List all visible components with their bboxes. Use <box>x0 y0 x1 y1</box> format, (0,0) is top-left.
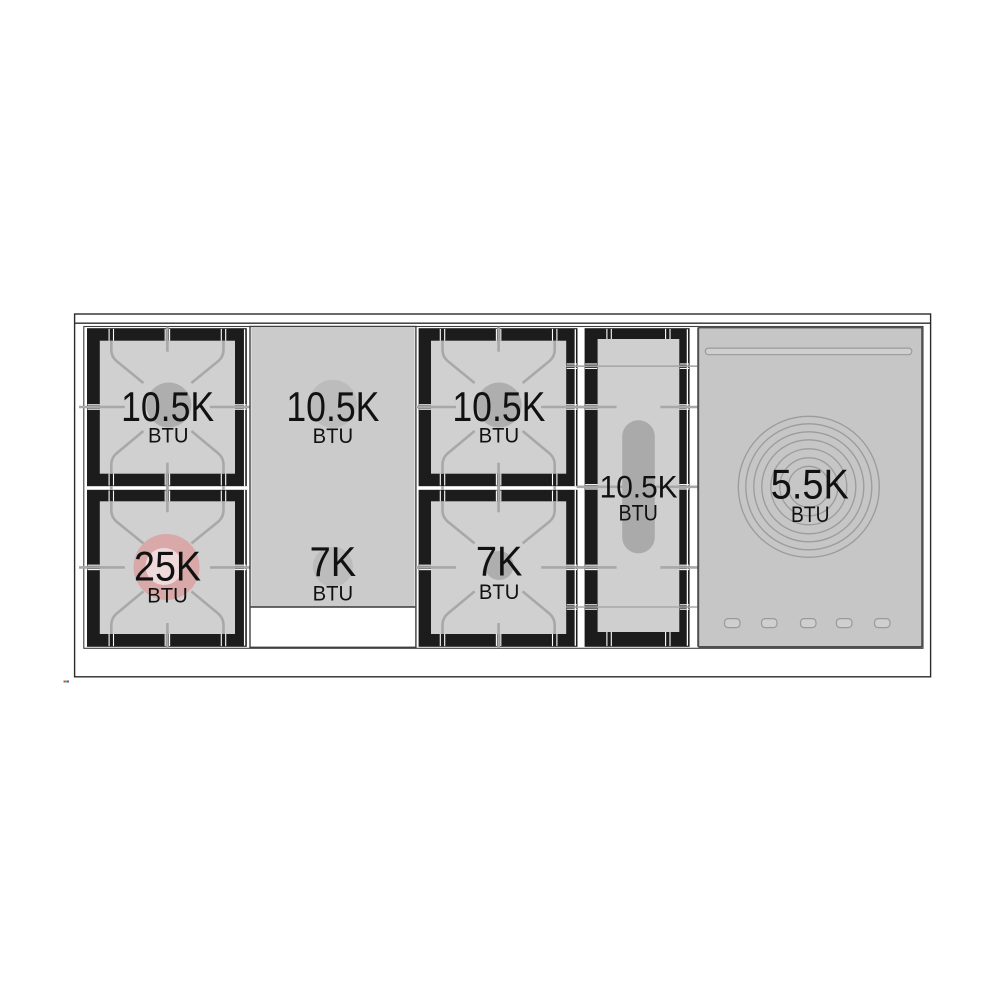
svg-text:BTU: BTU <box>313 425 354 448</box>
svg-text:5.5K: 5.5K <box>771 461 849 508</box>
svg-text:BTU: BTU <box>148 425 189 448</box>
svg-text:7K: 7K <box>476 537 523 584</box>
svg-text:10.5K: 10.5K <box>286 383 379 430</box>
svg-text:BTU: BTU <box>147 585 188 608</box>
svg-text:25K: 25K <box>134 543 201 590</box>
svg-text:BTU: BTU <box>479 581 520 604</box>
svg-text:BTU: BTU <box>618 501 658 526</box>
svg-text:BTU: BTU <box>313 582 354 605</box>
svg-text:BTU: BTU <box>479 425 520 448</box>
svg-text:10.5K: 10.5K <box>600 469 678 505</box>
svg-text:BTU: BTU <box>791 502 830 527</box>
svg-text:7K: 7K <box>310 538 357 585</box>
svg-text:10.5K: 10.5K <box>452 383 545 430</box>
svg-text:10.5K: 10.5K <box>121 383 214 430</box>
